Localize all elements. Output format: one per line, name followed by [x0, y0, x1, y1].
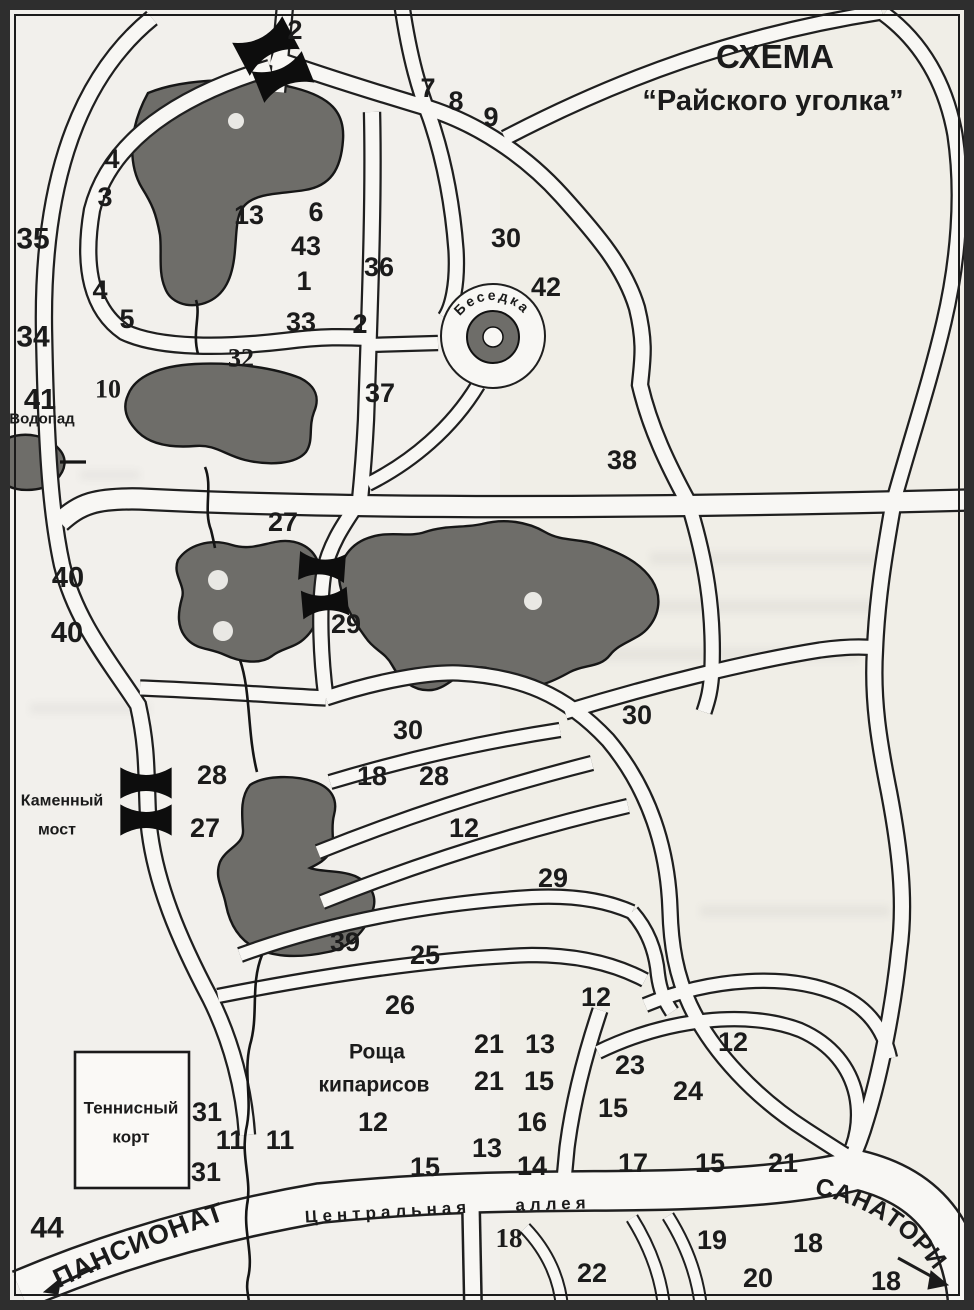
map-number: 23 [615, 1050, 645, 1080]
map-number: 10 [95, 375, 121, 404]
cypress-grove-label-1: Роща [349, 1041, 405, 1064]
map-number: 28 [419, 761, 449, 791]
map-number: 11 [266, 1125, 295, 1155]
map-number: 35 [16, 223, 49, 256]
map-number: 13 [234, 200, 264, 230]
map-number: 29 [331, 609, 361, 639]
map-number: 39 [330, 927, 360, 957]
cypress-grove-label-2: кипарисов [319, 1074, 430, 1097]
map-number: 27 [268, 507, 298, 537]
pond-islands-west [176, 541, 319, 662]
map-number: 30 [393, 715, 423, 745]
map-number: 19 [697, 1225, 727, 1255]
map-number: 16 [517, 1107, 547, 1137]
map-number: 20 [743, 1263, 773, 1293]
map-number: 5 [119, 304, 134, 334]
map-number: 1 [296, 266, 311, 296]
map-number: 12 [358, 1107, 388, 1137]
map-number: 40 [52, 562, 84, 594]
map-number: 33 [286, 307, 316, 337]
map-number: 2 [352, 309, 367, 339]
map-number: 12 [449, 813, 479, 843]
map-number: 26 [385, 990, 415, 1020]
map-number: 18 [793, 1228, 823, 1258]
map-number: 21 [768, 1148, 798, 1178]
map-number: 12 [581, 982, 611, 1012]
map-number: 38 [607, 445, 637, 475]
map-number: 36 [364, 252, 394, 282]
map-number: 29 [538, 863, 568, 893]
map-number: 32 [228, 344, 254, 373]
map-number: 12 [718, 1027, 748, 1057]
waterfall-label: Водопад [9, 411, 75, 428]
map-number: 9 [483, 102, 498, 132]
map-number: 15 [695, 1148, 725, 1178]
stone-bridge-label-1: Каменный [21, 793, 103, 810]
map-number: 18 [496, 1223, 523, 1253]
gazebo-icon [467, 311, 519, 363]
map-title-line2: “Райского уголка” [642, 85, 903, 117]
map-number: 40 [51, 617, 83, 649]
park-map: СХЕМА “Райского уголка” 2789433513643136… [0, 0, 974, 1310]
map-number: 24 [673, 1076, 703, 1106]
map-number: 42 [531, 272, 561, 302]
map-number: 6 [308, 197, 323, 227]
map-number: 28 [197, 760, 227, 790]
map-number: 22 [577, 1258, 607, 1288]
map-number: 4 [92, 275, 107, 305]
map-number: 25 [410, 940, 440, 970]
map-title-line1: СХЕМА [716, 38, 834, 75]
scanned-park-map-page: СХЕМА “Райского уголка” 2789433513643136… [0, 0, 974, 1310]
map-number: 15 [598, 1093, 628, 1123]
tennis-court [75, 1052, 189, 1188]
map-number: 21 [474, 1029, 504, 1059]
map-number: 14 [517, 1151, 547, 1181]
map-number: 44 [30, 1212, 64, 1245]
map-number: 4 [104, 144, 119, 174]
map-number: 31 [192, 1097, 222, 1127]
stone-bridge-label-2: мост [38, 822, 76, 839]
map-number: 37 [365, 378, 395, 408]
map-number: 18 [357, 761, 387, 791]
map-number: 30 [491, 223, 521, 253]
map-number: 27 [190, 813, 220, 843]
map-number: 30 [622, 700, 652, 730]
map-number: 15 [410, 1152, 440, 1182]
map-number: 34 [16, 321, 50, 354]
map-number: 13 [472, 1133, 502, 1163]
map-number: 43 [291, 231, 321, 261]
map-number: 7 [420, 73, 435, 103]
map-number: 11 [216, 1125, 245, 1155]
map-number: 18 [871, 1266, 901, 1296]
map-number: 31 [191, 1157, 221, 1187]
central-alley-label-2: аллея [515, 1193, 591, 1215]
map-number: 2 [287, 15, 302, 45]
map-number: 13 [525, 1029, 555, 1059]
map-number: 8 [448, 86, 463, 116]
map-number: 15 [524, 1066, 554, 1096]
tennis-court-label-2: корт [112, 1128, 149, 1147]
map-number: 17 [618, 1148, 648, 1178]
tennis-court-label-1: Теннисный [84, 1099, 179, 1118]
map-number: 3 [97, 182, 112, 212]
map-number: 21 [474, 1066, 504, 1096]
